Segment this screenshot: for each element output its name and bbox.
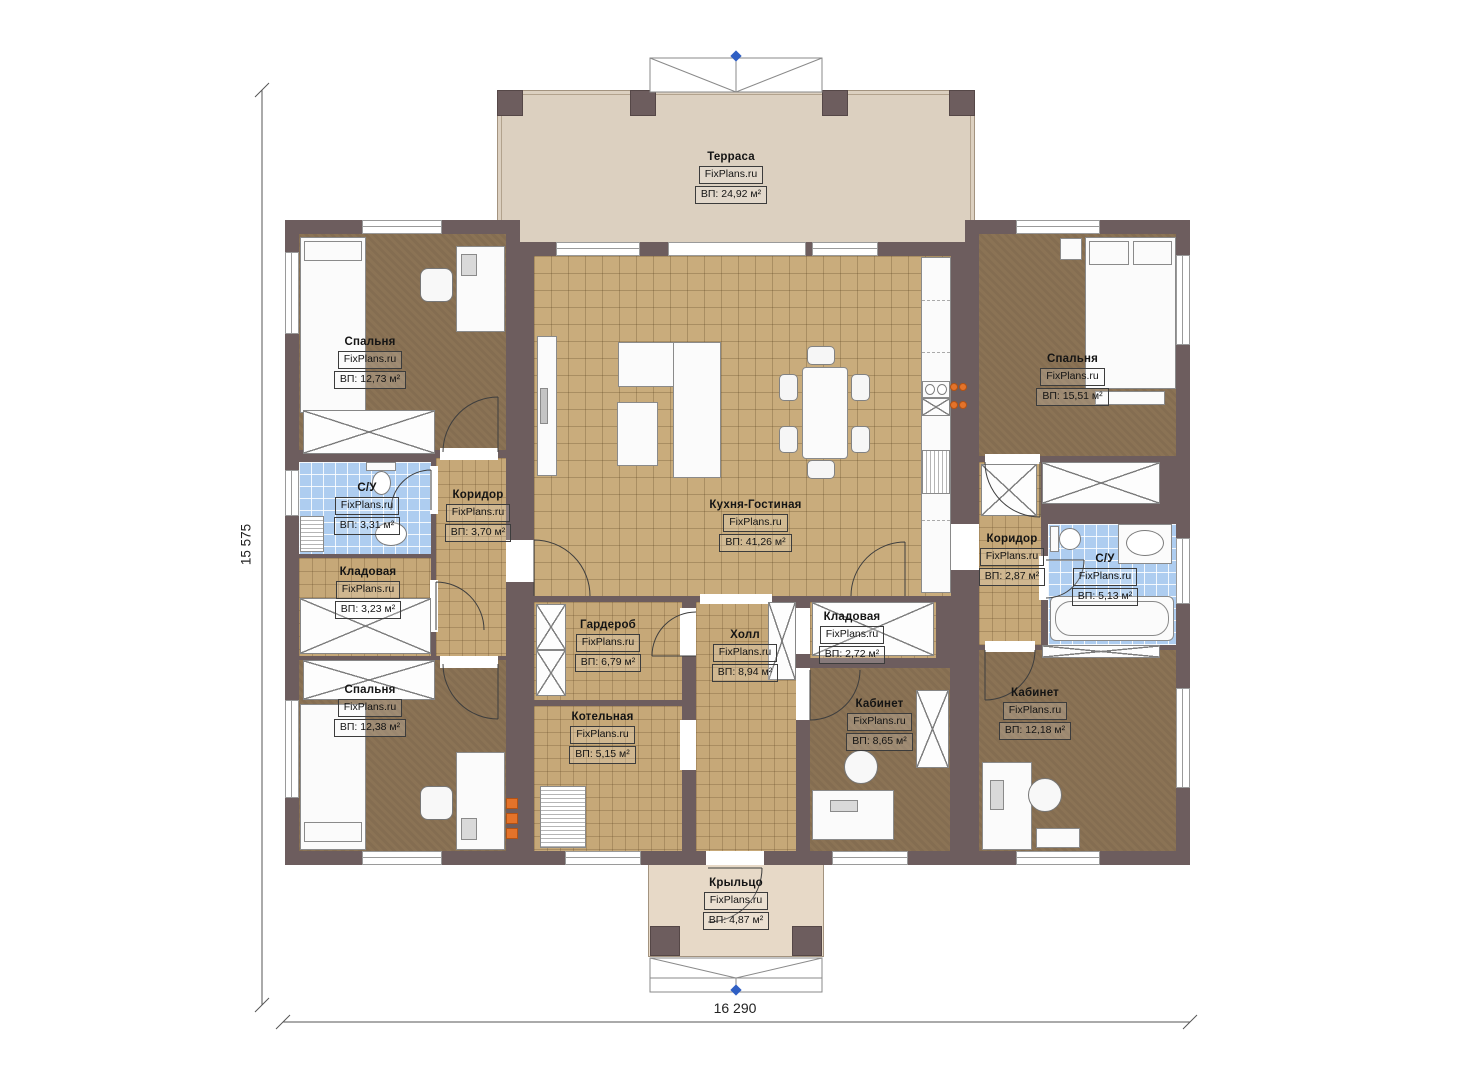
window bbox=[832, 851, 908, 865]
boiler-unit bbox=[506, 813, 518, 824]
room-label-bathroom-left: С/У FixPlans.ru ВП: 3,31 м² bbox=[308, 481, 426, 535]
window bbox=[362, 220, 442, 234]
closet-strip bbox=[1042, 645, 1160, 658]
tv bbox=[540, 388, 548, 424]
terrace-pillar bbox=[630, 90, 656, 116]
window bbox=[1016, 851, 1100, 865]
doorway bbox=[680, 720, 696, 770]
dining-table bbox=[802, 367, 848, 459]
doorway bbox=[506, 540, 534, 582]
doorway bbox=[440, 656, 498, 668]
window bbox=[1176, 255, 1190, 345]
room-label-bedroom-top-left: Спальня FixPlans.ru ВП: 12,73 м² bbox=[305, 335, 435, 389]
room-label-office-large: Кабинет FixPlans.ru ВП: 12,18 м² bbox=[975, 686, 1095, 740]
roof-outline-bottom bbox=[650, 958, 822, 996]
window bbox=[285, 700, 299, 798]
window bbox=[565, 851, 641, 865]
dining-chair bbox=[807, 460, 835, 479]
fridge bbox=[922, 450, 950, 494]
room-label-corridor-left: Коридор FixPlans.ru ВП: 3,70 м² bbox=[428, 488, 528, 542]
counter-divider bbox=[922, 300, 950, 301]
room-label-terrace: Терраса FixPlans.ru ВП: 24,92 м² bbox=[651, 150, 811, 204]
counter-divider bbox=[922, 352, 950, 353]
doorway bbox=[985, 454, 1040, 464]
terrace-doorway bbox=[668, 242, 806, 256]
sink-bowl bbox=[937, 384, 947, 395]
bed-pillow bbox=[304, 822, 362, 842]
office-chair bbox=[844, 750, 878, 784]
room-label-hall: Холл FixPlans.ru ВП: 8,94 м² bbox=[690, 628, 800, 682]
side-table bbox=[1036, 828, 1080, 848]
sofa bbox=[673, 342, 721, 478]
dimension-width-label: 16 290 bbox=[660, 1000, 810, 1016]
terrace-pillar bbox=[822, 90, 848, 116]
porch-doorway bbox=[706, 851, 764, 865]
bed-pillow bbox=[1133, 241, 1172, 265]
boiler-unit bbox=[506, 828, 518, 839]
nightstand bbox=[1060, 238, 1082, 260]
terrace-pillar bbox=[497, 90, 523, 116]
dimension-height-label: 15 575 bbox=[239, 505, 254, 585]
doorway bbox=[440, 448, 498, 460]
room-label-pantry-left: Кладовая FixPlans.ru ВП: 3,23 м² bbox=[303, 565, 433, 619]
wardrobe-cabinet bbox=[303, 410, 435, 454]
roof-outline-top bbox=[650, 50, 822, 92]
window bbox=[1016, 220, 1100, 234]
bed-pillow bbox=[1089, 241, 1129, 265]
boiler bbox=[540, 786, 586, 848]
wardrobe-cabinet bbox=[981, 464, 1037, 516]
stove-burner bbox=[959, 383, 967, 391]
bed-pillow bbox=[304, 241, 362, 261]
dining-chair bbox=[851, 374, 870, 401]
room-label-porch: Крыльцо FixPlans.ru ВП: 4,87 м² bbox=[656, 876, 816, 930]
window bbox=[285, 252, 299, 334]
computer bbox=[830, 800, 858, 812]
room-label-bedroom-top-right: Спальня FixPlans.ru ВП: 15,51 м² bbox=[1005, 352, 1140, 406]
window bbox=[1176, 538, 1190, 604]
window bbox=[812, 242, 878, 256]
stove-burner bbox=[950, 401, 958, 409]
sink-bowl bbox=[925, 384, 935, 395]
dining-chair bbox=[851, 426, 870, 453]
doorway bbox=[985, 641, 1035, 652]
porch-pillar bbox=[650, 926, 680, 956]
printer bbox=[461, 254, 477, 276]
porch-pillar bbox=[792, 926, 822, 956]
office-chair bbox=[1028, 778, 1062, 812]
room-label-boiler: Котельная FixPlans.ru ВП: 5,15 м² bbox=[545, 710, 660, 764]
room-label-wardrobe: Гардероб FixPlans.ru ВП: 6,79 м² bbox=[548, 618, 668, 672]
counter-divider bbox=[922, 520, 950, 521]
coffee-table bbox=[617, 402, 658, 466]
room-label-bedroom-bottom-left: Спальня FixPlans.ru ВП: 12,38 м² bbox=[305, 683, 435, 737]
window bbox=[285, 470, 299, 516]
room-label-bathroom-right: С/У FixPlans.ru ВП: 5,13 м² bbox=[1050, 552, 1160, 606]
window bbox=[1176, 688, 1190, 788]
stove bbox=[922, 398, 950, 416]
boiler-unit bbox=[506, 798, 518, 809]
window bbox=[362, 851, 442, 865]
room-label-corridor-right: Коридор FixPlans.ru ВП: 2,87 м² bbox=[962, 532, 1062, 586]
toilet-tank bbox=[366, 462, 396, 471]
doorway bbox=[700, 594, 772, 604]
computer bbox=[990, 780, 1004, 810]
stove-burner bbox=[950, 383, 958, 391]
terrace-pillar bbox=[949, 90, 975, 116]
kitchen-counter bbox=[921, 257, 951, 593]
room-label-pantry-right: Кладовая FixPlans.ru ВП: 2,72 м² bbox=[793, 610, 911, 664]
toilet bbox=[1059, 528, 1081, 550]
desk bbox=[812, 790, 894, 840]
dining-chair bbox=[807, 346, 835, 365]
room-label-kitchen-living: Кухня-Гостиная FixPlans.ru ВП: 41,26 м² bbox=[688, 498, 823, 552]
stove-burner bbox=[959, 401, 967, 409]
window bbox=[556, 242, 640, 256]
wardrobe-cabinet bbox=[1042, 462, 1160, 504]
floor-plan: 15 575 16 290 Терраса FixPlans.ru ВП: 24… bbox=[0, 0, 1474, 1080]
dining-chair bbox=[779, 426, 798, 453]
chair bbox=[420, 786, 453, 820]
printer bbox=[461, 818, 477, 840]
bathtub-inner bbox=[1055, 601, 1169, 636]
dining-chair bbox=[779, 374, 798, 401]
chair bbox=[420, 268, 453, 302]
room-label-office-small: Кабинет FixPlans.ru ВП: 8,65 м² bbox=[822, 697, 937, 751]
